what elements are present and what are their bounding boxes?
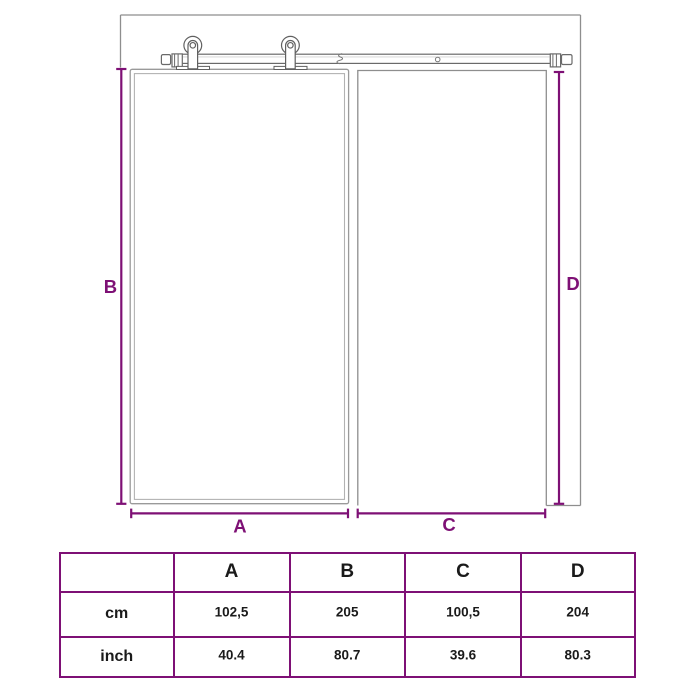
svg-text:B: B (104, 276, 117, 297)
svg-text:A: A (233, 516, 246, 537)
svg-text:D: D (566, 273, 579, 294)
svg-text:C: C (442, 514, 455, 535)
